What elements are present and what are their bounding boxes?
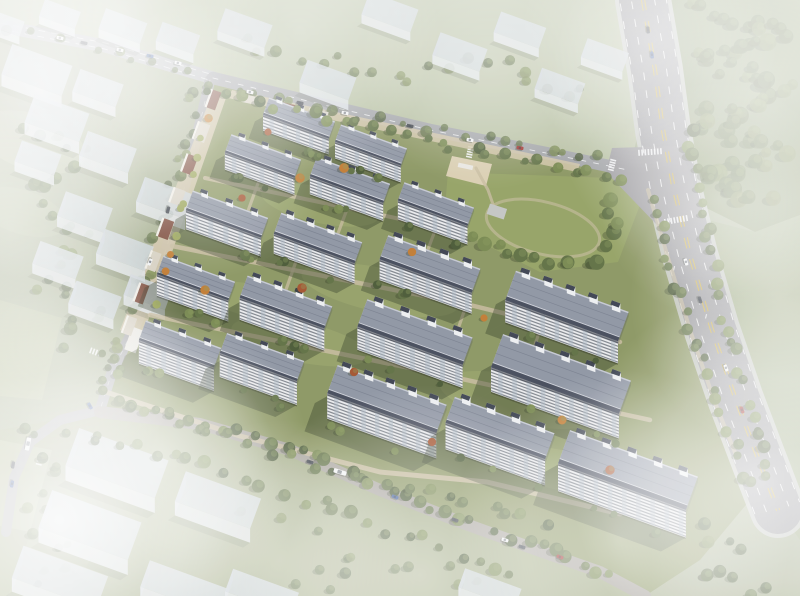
fog-haze-layer [0,0,800,596]
aerial-render-image [0,0,800,596]
scene-svg [0,0,800,596]
